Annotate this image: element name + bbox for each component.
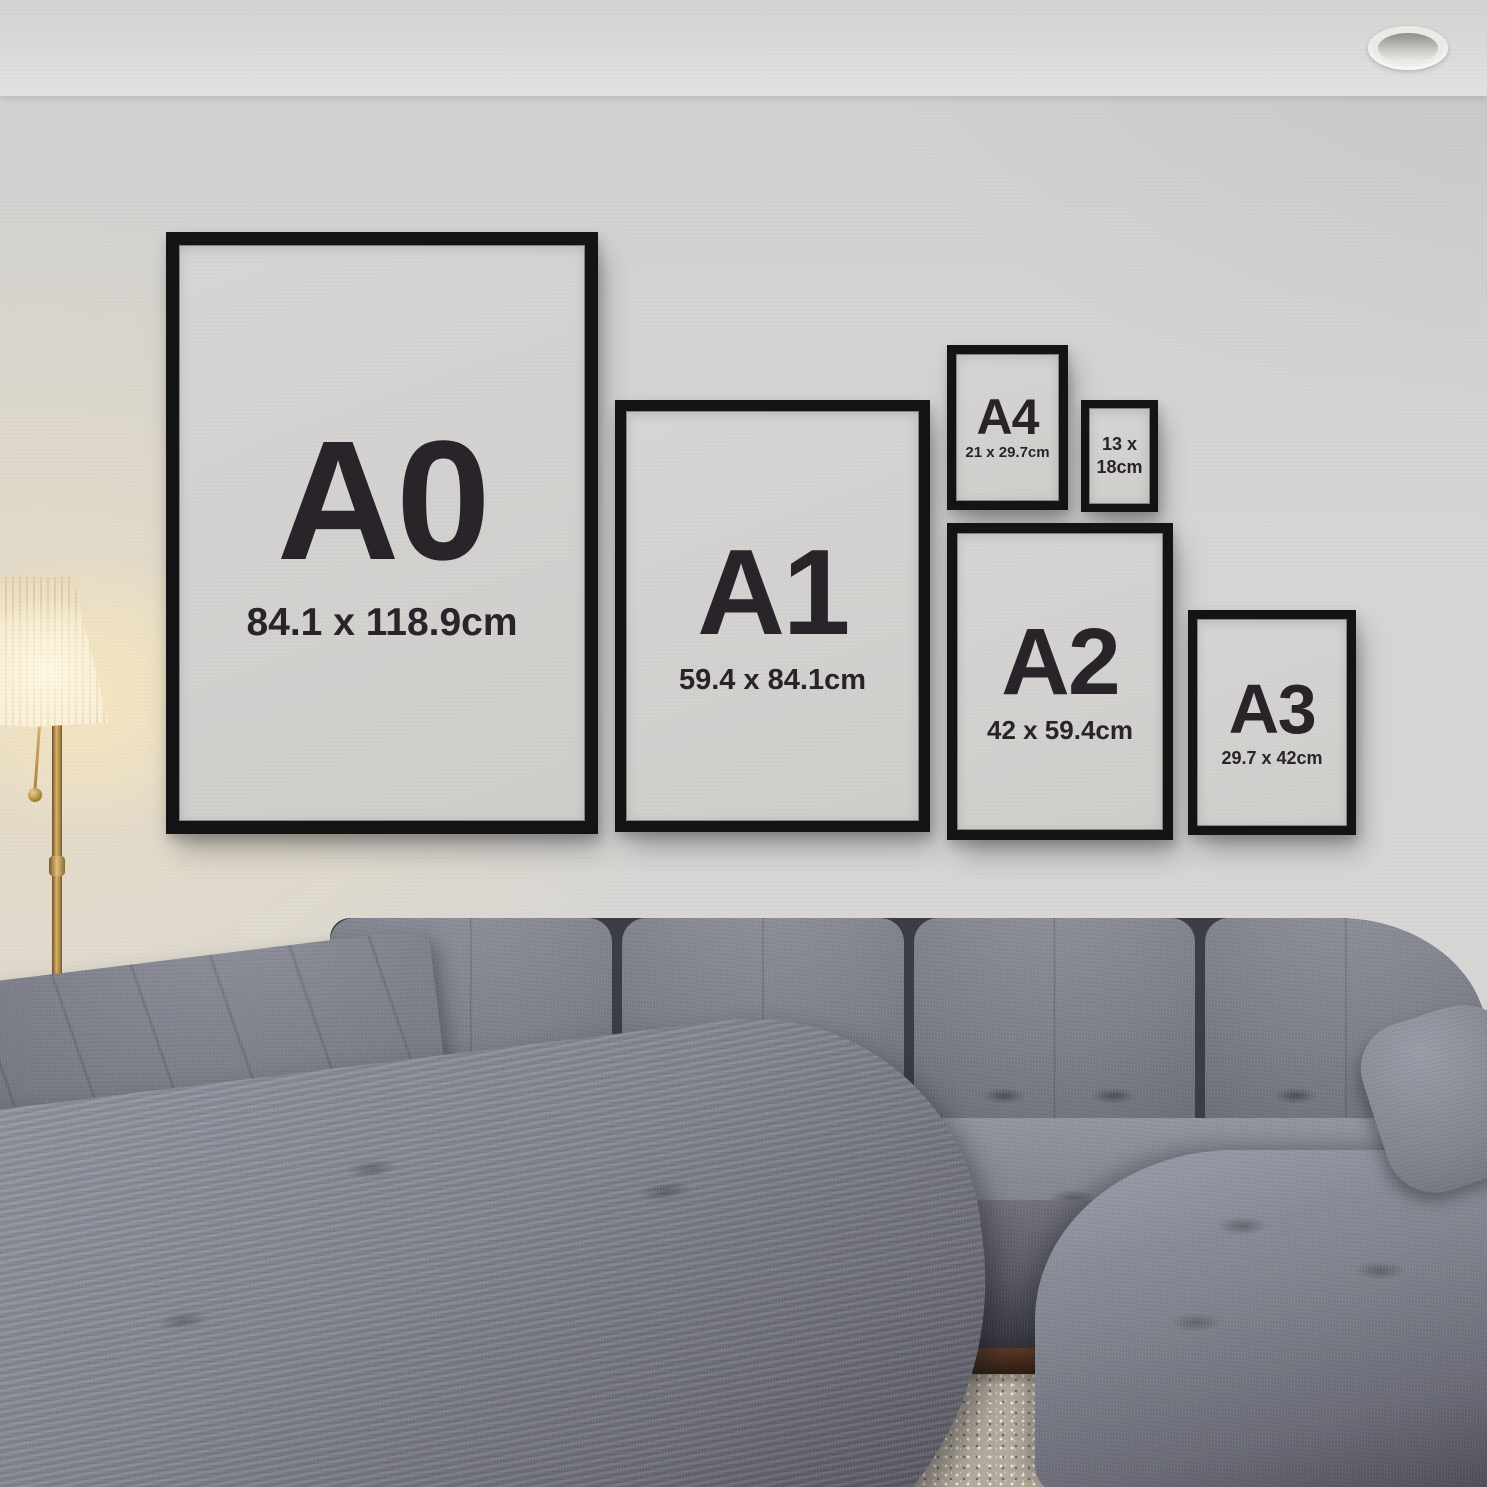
- sofa-right-chaise: [1035, 1150, 1487, 1487]
- living-room-scene: A0 84.1 x 118.9cm A1 59.4 x 84.1cm A4 21…: [0, 0, 1487, 1487]
- sectional-sofa: [0, 0, 1487, 1487]
